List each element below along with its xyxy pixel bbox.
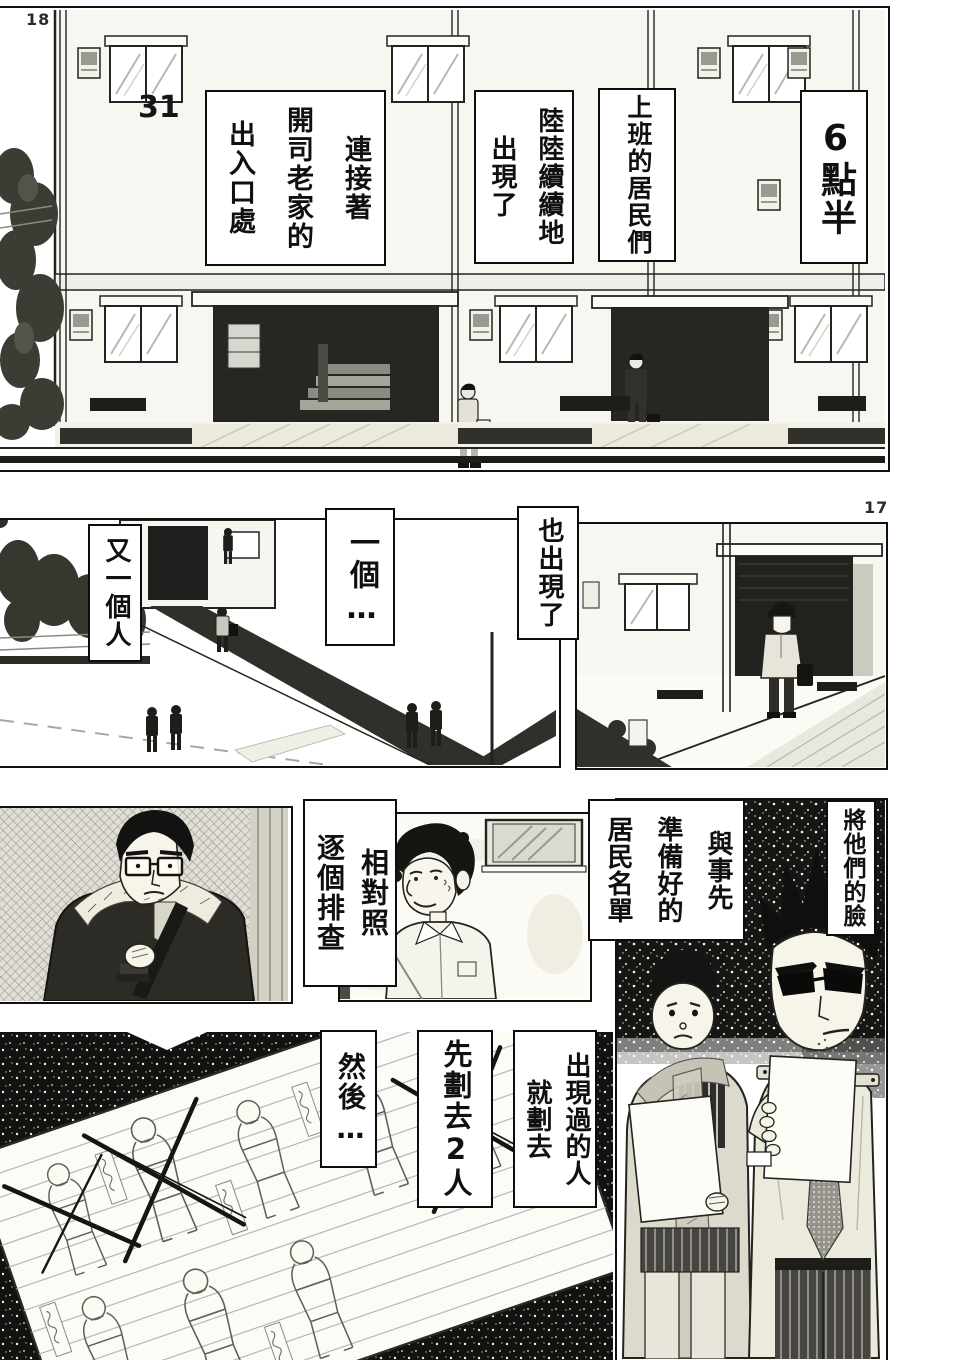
caption-entrance: 連接著 開司老家的 出入口處 xyxy=(205,90,386,266)
caption-another-person: 又一個人 xyxy=(88,524,142,662)
detective-illustration xyxy=(0,808,288,1001)
caption-one-more: 一個… xyxy=(325,508,395,646)
caption-compare: 相對照 逐個排查 xyxy=(303,799,397,987)
caption-cross-out-appeared: 出現過的人 就劃去 xyxy=(513,1030,597,1208)
panel-detective xyxy=(0,806,293,1004)
caption-appearing: 陸陸續續地 出現了 xyxy=(474,90,574,264)
entrance-right xyxy=(592,296,788,441)
white-notch-triangle xyxy=(127,1004,207,1042)
caption-time: 6點半 xyxy=(800,90,868,264)
street-illustration xyxy=(0,520,556,765)
entrance-left xyxy=(192,292,458,422)
panel-apartment-morning xyxy=(0,6,890,472)
caption-their-faces: 將他們的臉 xyxy=(826,800,876,936)
caption-crossed-two: 先劃去2人 xyxy=(417,1030,493,1208)
page-number-17: 17 xyxy=(864,498,888,517)
caption-also-appeared: 也出現了 xyxy=(517,506,579,640)
caption-prepared-list: 與事先 準備好的 居民名單 xyxy=(588,799,745,941)
apartment-illustration xyxy=(0,8,885,469)
caption-residents: 上班的居民們 xyxy=(598,88,676,262)
building-number: 31 xyxy=(138,90,180,125)
manga-page: 18 31 連接著 開司老家的 出入口處 陸陸續續地 出現了 上班的居民們 6點… xyxy=(0,0,957,1360)
panel-street-overview xyxy=(0,518,561,768)
panel-entrance-appear xyxy=(575,522,888,770)
caption-then: 然後… xyxy=(320,1030,377,1168)
page-number-18: 18 xyxy=(26,10,50,29)
entrance-illustration xyxy=(577,524,885,767)
